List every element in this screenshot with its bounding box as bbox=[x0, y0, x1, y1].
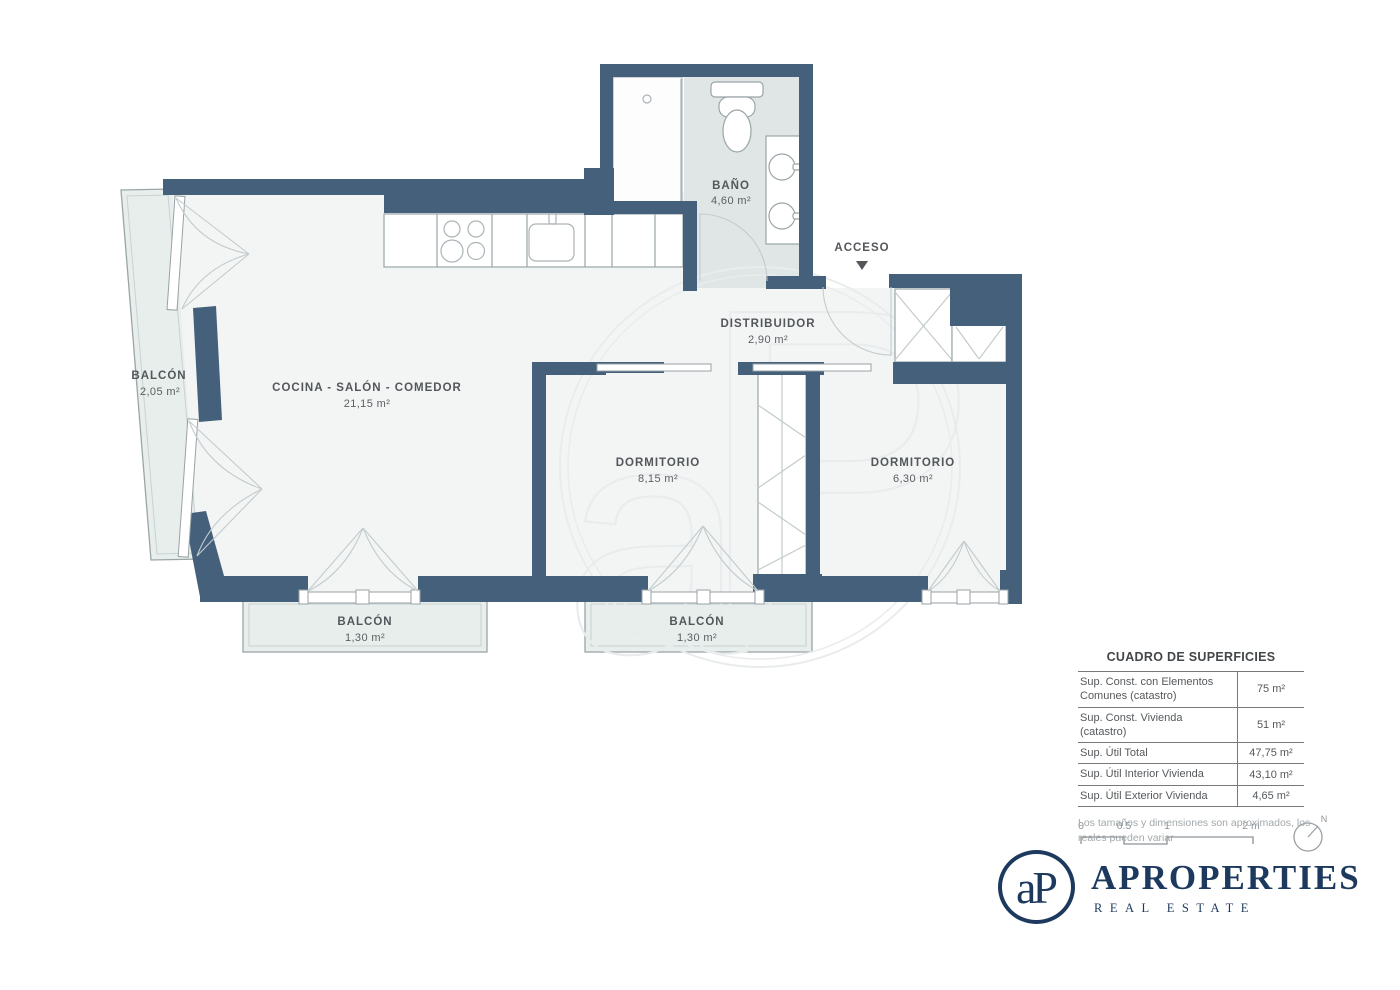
row-value: 51 m² bbox=[1237, 708, 1304, 743]
brand-text: APROPERTIES REAL ESTATE bbox=[1091, 858, 1361, 916]
label-distribuidor-area: 2,90 m² bbox=[748, 334, 788, 346]
shower-floor bbox=[613, 77, 682, 203]
row-label: Sup. Const. Vivienda (catastro) bbox=[1078, 708, 1237, 743]
label-dormitorio1: DORMITORIO bbox=[616, 457, 701, 469]
label-balcon2: BALCÓN bbox=[669, 615, 724, 628]
label-dormitorio1-area: 8,15 m² bbox=[638, 473, 678, 485]
brand-name: APROPERTIES bbox=[1091, 858, 1361, 898]
row-value: 75 m² bbox=[1237, 672, 1304, 707]
disclaimer-note: Los tamaños y dimensiones son aproximado… bbox=[1078, 816, 1313, 845]
label-bano: BAÑO bbox=[712, 179, 750, 192]
row-label: Sup. Útil Interior Vivienda bbox=[1078, 764, 1237, 784]
row-label: Sup. Const. con Elementos Comunes (catas… bbox=[1078, 672, 1237, 707]
row-value: 43,10 m² bbox=[1237, 764, 1304, 784]
table-row: Sup. Útil Exterior Vivienda 4,65 m² bbox=[1078, 785, 1304, 806]
brand-monogram-text: aP bbox=[1016, 861, 1054, 914]
brand-monogram-icon: aP bbox=[998, 850, 1075, 924]
row-label: Sup. Útil Exterior Vivienda bbox=[1078, 786, 1237, 806]
bedroom-wardrobe bbox=[758, 374, 806, 576]
label-salon-area: 21,15 m² bbox=[344, 398, 391, 410]
label-salon: COCINA - SALÓN - COMEDOR bbox=[272, 381, 462, 394]
compass-north-label: N bbox=[1321, 814, 1328, 824]
closet-2 bbox=[952, 324, 1006, 362]
floorplan-page: a P bbox=[0, 0, 1400, 990]
table-row: Sup. Const. Vivienda (catastro) 51 m² bbox=[1078, 707, 1304, 743]
closet-1 bbox=[895, 289, 952, 362]
surface-table-title: CUADRO DE SUPERFICIES bbox=[1078, 650, 1304, 664]
label-balcon1: BALCÓN bbox=[337, 615, 392, 628]
brand-logo: aP APROPERTIES REAL ESTATE bbox=[998, 850, 1361, 924]
label-acceso: ACCESO bbox=[834, 242, 889, 254]
row-label: Sup. Útil Total bbox=[1078, 743, 1237, 763]
label-balcon-izq: BALCÓN bbox=[131, 369, 186, 382]
label-balcon1-area: 1,30 m² bbox=[345, 632, 385, 644]
table-row: Sup. Útil Interior Vivienda 43,10 m² bbox=[1078, 763, 1304, 784]
label-bano-area: 4,60 m² bbox=[711, 195, 751, 207]
brand-tagline: REAL ESTATE bbox=[1091, 901, 1361, 916]
surface-table: CUADRO DE SUPERFICIES Sup. Const. con El… bbox=[1078, 650, 1304, 845]
table-row: Sup. Const. con Elementos Comunes (catas… bbox=[1078, 671, 1304, 707]
label-dormitorio2: DORMITORIO bbox=[871, 457, 956, 469]
label-distribuidor: DISTRIBUIDOR bbox=[720, 318, 815, 330]
label-dormitorio2-area: 6,30 m² bbox=[893, 473, 933, 485]
row-value: 4,65 m² bbox=[1237, 786, 1304, 806]
kitchen-counter bbox=[384, 206, 683, 268]
table-row: Sup. Útil Total 47,75 m² bbox=[1078, 742, 1304, 763]
surface-table-rows: Sup. Const. con Elementos Comunes (catas… bbox=[1078, 671, 1304, 807]
row-value: 47,75 m² bbox=[1237, 743, 1304, 763]
label-balcon2-area: 1,30 m² bbox=[677, 632, 717, 644]
label-balcon-izq-area: 2,05 m² bbox=[140, 386, 180, 398]
